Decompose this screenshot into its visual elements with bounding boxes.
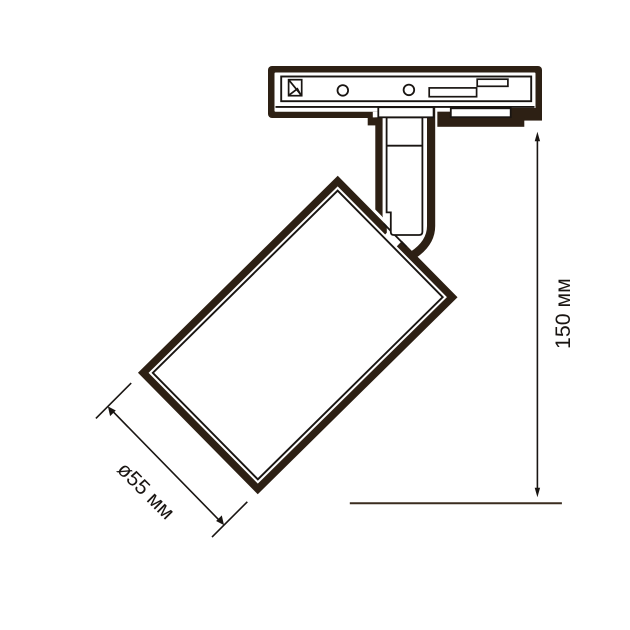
svg-text:150 мм: 150 мм (551, 278, 575, 349)
